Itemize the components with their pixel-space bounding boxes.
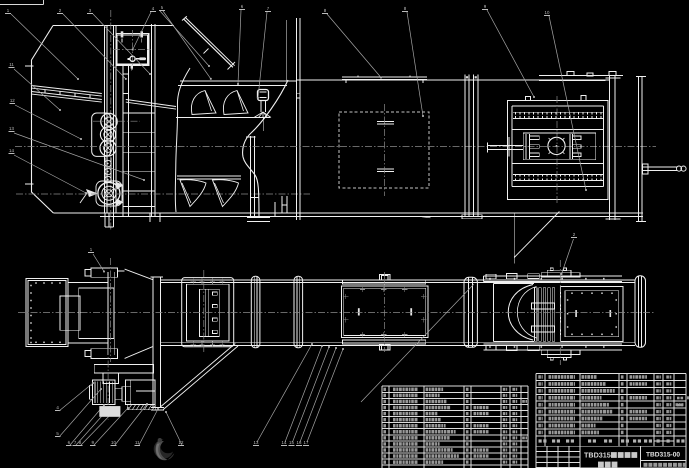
svg-text:TBD315-00: TBD315-00 [646, 452, 680, 459]
svg-text:14: 14 [9, 148, 14, 153]
svg-text:10: 10 [545, 10, 550, 15]
svg-text:12: 12 [10, 98, 15, 103]
svg-text:14: 14 [282, 440, 287, 445]
svg-text:13: 13 [254, 440, 259, 445]
svg-text:13: 13 [9, 126, 14, 131]
svg-text:16: 16 [297, 440, 302, 445]
svg-text:TBD315: TBD315 [584, 451, 611, 460]
svg-text:17: 17 [304, 440, 309, 445]
svg-text:11: 11 [9, 62, 14, 67]
svg-text:15: 15 [289, 440, 294, 445]
